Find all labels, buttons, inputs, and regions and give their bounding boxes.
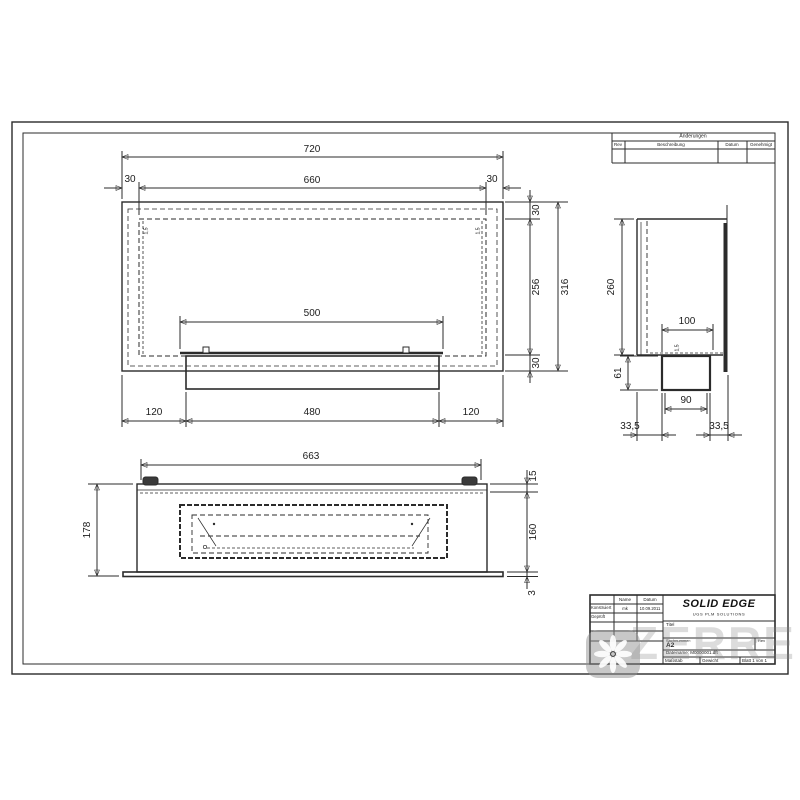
revisions-col-appr: Genehmigt bbox=[750, 143, 772, 148]
dim-side-height: 260 bbox=[607, 279, 617, 296]
side-view bbox=[637, 205, 728, 390]
dim-side-gap-right: 33,5 bbox=[709, 422, 728, 432]
front-view bbox=[122, 202, 503, 389]
dim-front-total-width: 720 bbox=[304, 145, 321, 155]
solid-edge-logo: SOLID EDGE bbox=[683, 598, 756, 610]
revisions-col-rev: Rev bbox=[614, 143, 622, 148]
dim-bottom-inner-height: 160 bbox=[529, 524, 539, 541]
dim-front-wall-right: 1,5 bbox=[477, 228, 482, 235]
front-view-dimensions bbox=[104, 151, 568, 427]
bottom-view bbox=[123, 477, 503, 577]
dim-front-offset-right: 30 bbox=[486, 175, 497, 185]
sheet-border bbox=[12, 122, 788, 674]
dim-side-box-inner: 90 bbox=[680, 396, 691, 406]
titleblock-col-name: Name bbox=[619, 598, 631, 603]
dim-front-offset-bottom: 30 bbox=[532, 357, 542, 368]
solid-edge-logo-sub: UGS PLM SOLUTIONS bbox=[693, 612, 745, 617]
titleblock-drawn-date: 10.09.2011 bbox=[640, 606, 661, 610]
titleblock-sheet-label: Blatt 1 von 1 bbox=[742, 659, 767, 664]
dim-side-gap-left: 33,5 bbox=[620, 422, 639, 432]
dim-front-inner-height: 256 bbox=[532, 279, 542, 296]
titleblock-checked-label: Geprüft bbox=[591, 615, 605, 619]
revisions-col-date: Datum bbox=[725, 143, 738, 148]
dim-front-inner-width: 660 bbox=[304, 176, 321, 186]
dim-bottom-width: 663 bbox=[303, 452, 320, 462]
dim-front-offset-left: 30 bbox=[124, 175, 135, 185]
titleblock-sheet-size: A2 bbox=[666, 643, 674, 650]
titleblock-title-label: Titel bbox=[666, 623, 674, 628]
dim-front-foot-right: 120 bbox=[463, 408, 480, 418]
dim-bottom-height: 178 bbox=[83, 522, 93, 539]
titleblock-scale-label: Maßstab bbox=[665, 659, 683, 664]
titleblock-col-date: Datum bbox=[643, 598, 656, 603]
dim-side-box-width: 100 bbox=[679, 317, 696, 327]
titleblock-filename: Dateiname: M0000001.dft bbox=[666, 651, 718, 656]
titleblock-rev-label: Rev bbox=[758, 639, 765, 643]
dim-side-box-height: 61 bbox=[614, 367, 624, 378]
dim-bottom-lip: 15 bbox=[529, 470, 539, 481]
titleblock-weight-label: Gewicht bbox=[702, 659, 718, 664]
drawing-page: Änderungen Rev Beschreibung Datum Genehm… bbox=[0, 0, 800, 800]
dim-front-total-height: 316 bbox=[561, 279, 571, 296]
dim-front-foot-left: 120 bbox=[146, 408, 163, 418]
dim-front-opening: 500 bbox=[304, 309, 321, 319]
dim-front-offset-top: 30 bbox=[532, 204, 542, 215]
titleblock-drawn-label: Konstruiert bbox=[591, 606, 611, 610]
revisions-title: Änderungen bbox=[679, 135, 706, 140]
dim-side-wall: 1,5 bbox=[676, 345, 681, 352]
side-view-dimensions bbox=[614, 219, 742, 441]
dim-front-tray-width: 480 bbox=[304, 408, 321, 418]
revisions-col-desc: Beschreibung bbox=[657, 143, 685, 148]
dim-front-wall-left: 1,5 bbox=[145, 228, 150, 235]
dim-bottom-base: 3 bbox=[528, 590, 538, 596]
titleblock-drawn-name: mk bbox=[622, 606, 628, 610]
